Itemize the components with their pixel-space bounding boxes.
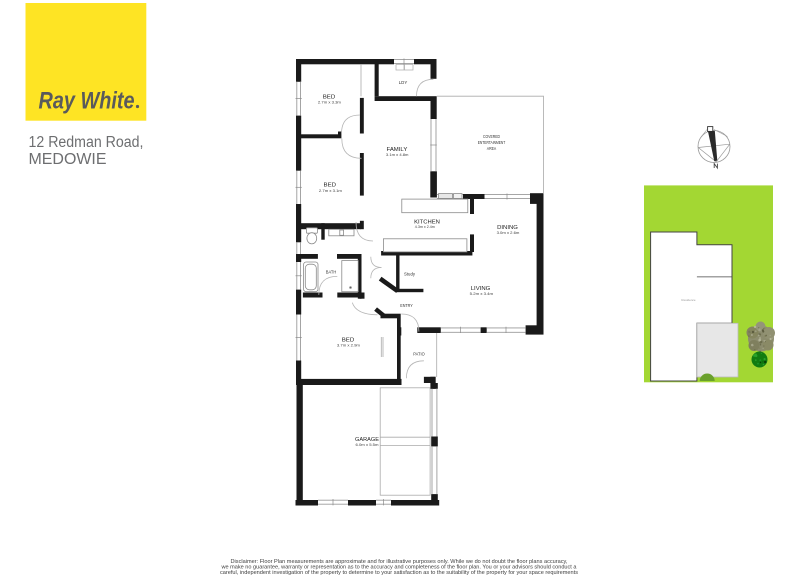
svg-text:LDY: LDY <box>399 80 408 85</box>
svg-text:ENTRY: ENTRY <box>400 303 413 308</box>
svg-text:careful, independent investiga: careful, independent investigation of th… <box>220 570 578 576</box>
svg-text:Residence: Residence <box>681 298 696 302</box>
svg-text:COVERED: COVERED <box>483 134 500 139</box>
svg-text:ENTERTAINMENT: ENTERTAINMENT <box>478 140 506 145</box>
svg-text:2.7m x 3.1m: 2.7m x 3.1m <box>319 188 343 193</box>
svg-text:5.2m x 3.4m: 5.2m x 3.4m <box>470 291 494 296</box>
svg-text:PATIO: PATIO <box>413 352 425 357</box>
svg-text:AREA: AREA <box>487 146 497 151</box>
svg-text:6.0m x 5.5m: 6.0m x 5.5m <box>356 442 380 447</box>
svg-text:3.0m x 2.6m: 3.0m x 2.6m <box>497 230 520 235</box>
svg-text:Study: Study <box>404 272 416 277</box>
svg-text:2.7m x 3.3m: 2.7m x 3.3m <box>318 99 342 104</box>
svg-text:3.7m x 2.9m: 3.7m x 2.9m <box>337 343 361 348</box>
svg-text:BATH: BATH <box>326 270 337 275</box>
svg-text:3.1m x 4.8m: 3.1m x 4.8m <box>386 152 409 157</box>
svg-text:4.3m x 2.4m: 4.3m x 2.4m <box>415 224 436 229</box>
svg-text:12 Redman Road,: 12 Redman Road, <box>29 134 144 151</box>
svg-text:MEDOWIE: MEDOWIE <box>29 151 107 168</box>
svg-text:Ray White: Ray White <box>39 88 135 115</box>
